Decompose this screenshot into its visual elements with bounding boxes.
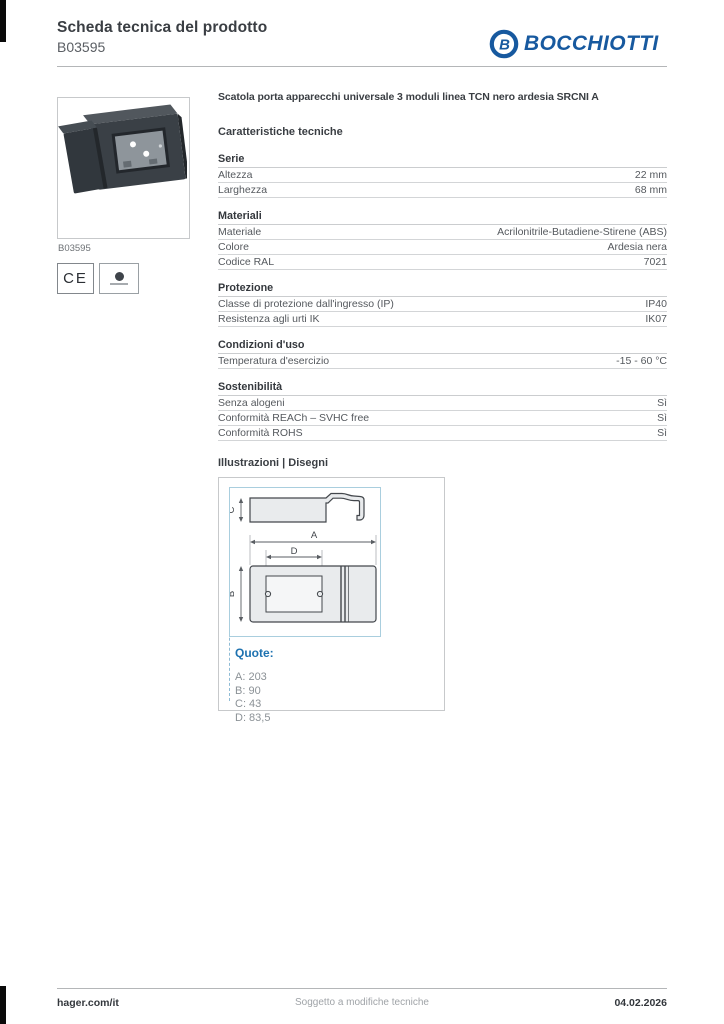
ce-mark-icon: CE (57, 263, 94, 294)
spec-row: Conformità ROHS Sì (218, 426, 667, 441)
spec-value: 7021 (644, 257, 667, 268)
product-image-caption: B03595 (58, 243, 91, 254)
section-materiali: Materiali Materiale Acrilonitrile-Butadi… (218, 210, 667, 270)
spec-label: Colore (218, 242, 249, 253)
spec-value: 68 mm (635, 185, 667, 196)
technical-drawing: C A D (230, 488, 378, 634)
brand-logo: B BOCCHIOTTI (489, 29, 659, 59)
page-title: Scheda tecnica del prodotto (57, 19, 267, 37)
spec-row: Temperatura d'esercizio -15 - 60 °C (218, 354, 667, 369)
section-sostenibilita: Sostenibilità Senza alogeni Sì Conformit… (218, 381, 667, 441)
illustrations-heading: Illustrazioni | Disegni (218, 457, 667, 469)
spec-label: Codice RAL (218, 257, 274, 268)
section-serie: Serie Altezza 22 mm Larghezza 68 mm (218, 153, 667, 198)
product-description: Scatola porta apparecchi universale 3 mo… (218, 91, 667, 103)
spec-row: Larghezza 68 mm (218, 183, 667, 198)
technical-drawing-frame: C A D (229, 487, 381, 637)
dimension-item: C: 43 (235, 698, 434, 712)
datasheet-page: Scheda tecnica del prodotto B03595 B BOC… (0, 0, 724, 1024)
section-title: Materiali (218, 210, 667, 225)
spec-value: -15 - 60 °C (616, 356, 667, 367)
spec-row: Senza alogeni Sì (218, 396, 667, 411)
spec-column: Scatola porta apparecchi universale 3 mo… (218, 91, 667, 711)
spec-label: Classe di protezione dall'ingresso (IP) (218, 299, 394, 310)
spec-value: 22 mm (635, 170, 667, 181)
quote-heading: Quote: (235, 646, 434, 660)
spec-label: Altezza (218, 170, 252, 181)
spec-row: Colore Ardesia nera (218, 240, 667, 255)
spec-label: Materiale (218, 227, 261, 238)
spec-value: Sì (657, 428, 667, 439)
spec-value: Acrilonitrile-Butadiene-Stirene (ABS) (497, 227, 667, 238)
section-condizioni: Condizioni d'uso Temperatura d'esercizio… (218, 339, 667, 369)
header-divider (57, 66, 667, 67)
spec-row: Classe di protezione dall'ingresso (IP) … (218, 297, 667, 312)
ce-mark-label: CE (63, 270, 88, 287)
crop-mark-bottom (0, 986, 6, 1024)
section-title: Sostenibilità (218, 381, 667, 396)
spec-value: IP40 (645, 299, 667, 310)
footer-date: 04.02.2026 (57, 997, 667, 1009)
dimension-list: A: 203 B: 90 C: 43 D: 83,5 (235, 671, 434, 725)
spec-row: Altezza 22 mm (218, 168, 667, 183)
spec-label: Temperatura d'esercizio (218, 356, 329, 367)
product-code: B03595 (57, 39, 105, 55)
footer-divider (57, 988, 667, 989)
svg-text:B: B (499, 37, 510, 54)
tech-heading: Caratteristiche tecniche (218, 126, 667, 138)
section-title: Protezione (218, 282, 667, 297)
spec-row: Conformità REACh – SVHC free Sì (218, 411, 667, 426)
dim-label-a: A (311, 530, 318, 541)
brand-circle-b-icon: B (489, 29, 519, 59)
certification-circle-icon (115, 272, 124, 281)
spec-row: Codice RAL 7021 (218, 255, 667, 270)
product-image-frame (57, 97, 190, 239)
section-protezione: Protezione Classe di protezione dall'ing… (218, 282, 667, 327)
spec-label: Senza alogeni (218, 398, 285, 409)
brand-wordmark: BOCCHIOTTI (524, 32, 659, 56)
spec-row: Resistenza agli urti IK IK07 (218, 312, 667, 327)
crop-mark-top (0, 0, 6, 42)
product-photo (58, 98, 187, 236)
dimension-item: B: 90 (235, 685, 434, 699)
spec-label: Resistenza agli urti IK (218, 314, 320, 325)
spec-row: Materiale Acrilonitrile-Butadiene-Stiren… (218, 225, 667, 240)
spec-value: Sì (657, 413, 667, 424)
certification-icon (99, 263, 139, 294)
dim-label-d: D (291, 546, 298, 557)
spec-value: Ardesia nera (607, 242, 667, 253)
dimension-item: D: 83,5 (235, 712, 434, 726)
spec-label: Conformità ROHS (218, 428, 303, 439)
certification-caption (110, 283, 128, 285)
dim-label-b: B (230, 591, 237, 597)
spec-label: Conformità REACh – SVHC free (218, 413, 369, 424)
spec-value: Sì (657, 398, 667, 409)
illustration-box: C A D (218, 477, 445, 711)
illustration-content: C A D (229, 487, 434, 701)
section-title: Condizioni d'uso (218, 339, 667, 354)
dim-label-c: C (230, 506, 237, 513)
spec-label: Larghezza (218, 185, 267, 196)
section-title: Serie (218, 153, 667, 168)
spec-sections: Serie Altezza 22 mm Larghezza 68 mm Mate… (218, 153, 667, 441)
dimension-item: A: 203 (235, 671, 434, 685)
spec-value: IK07 (645, 314, 667, 325)
